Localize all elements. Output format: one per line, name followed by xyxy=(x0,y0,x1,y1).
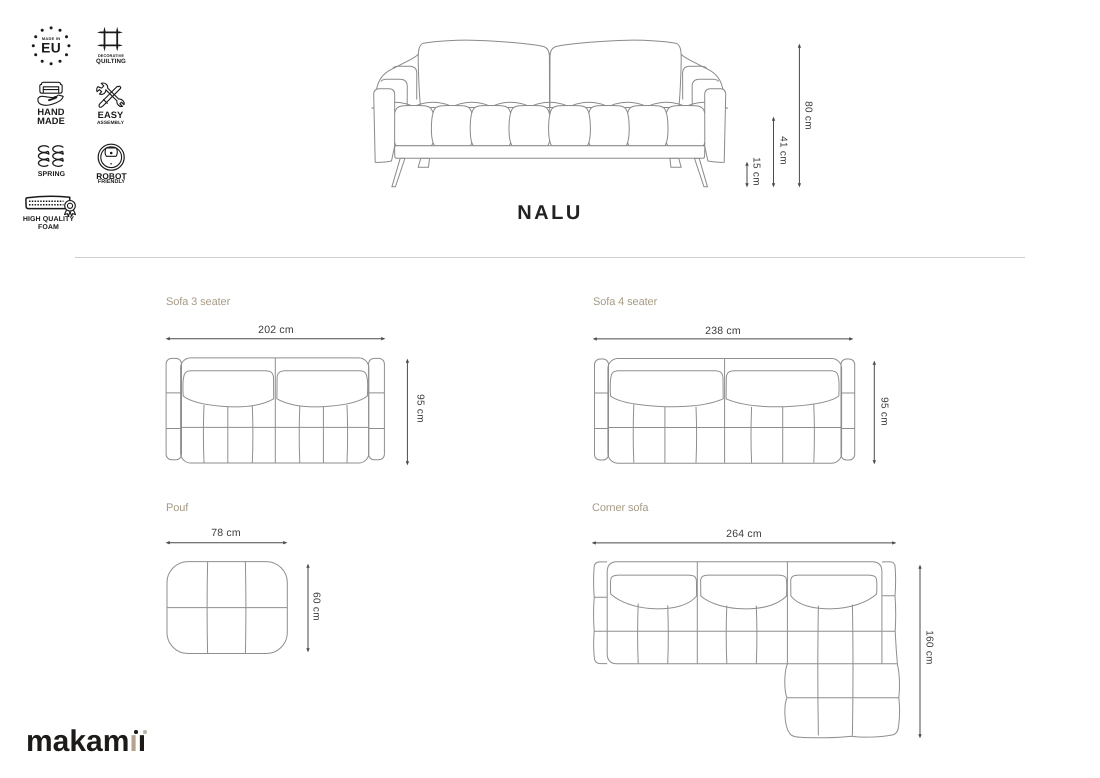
svg-text:EU: EU xyxy=(41,40,61,55)
